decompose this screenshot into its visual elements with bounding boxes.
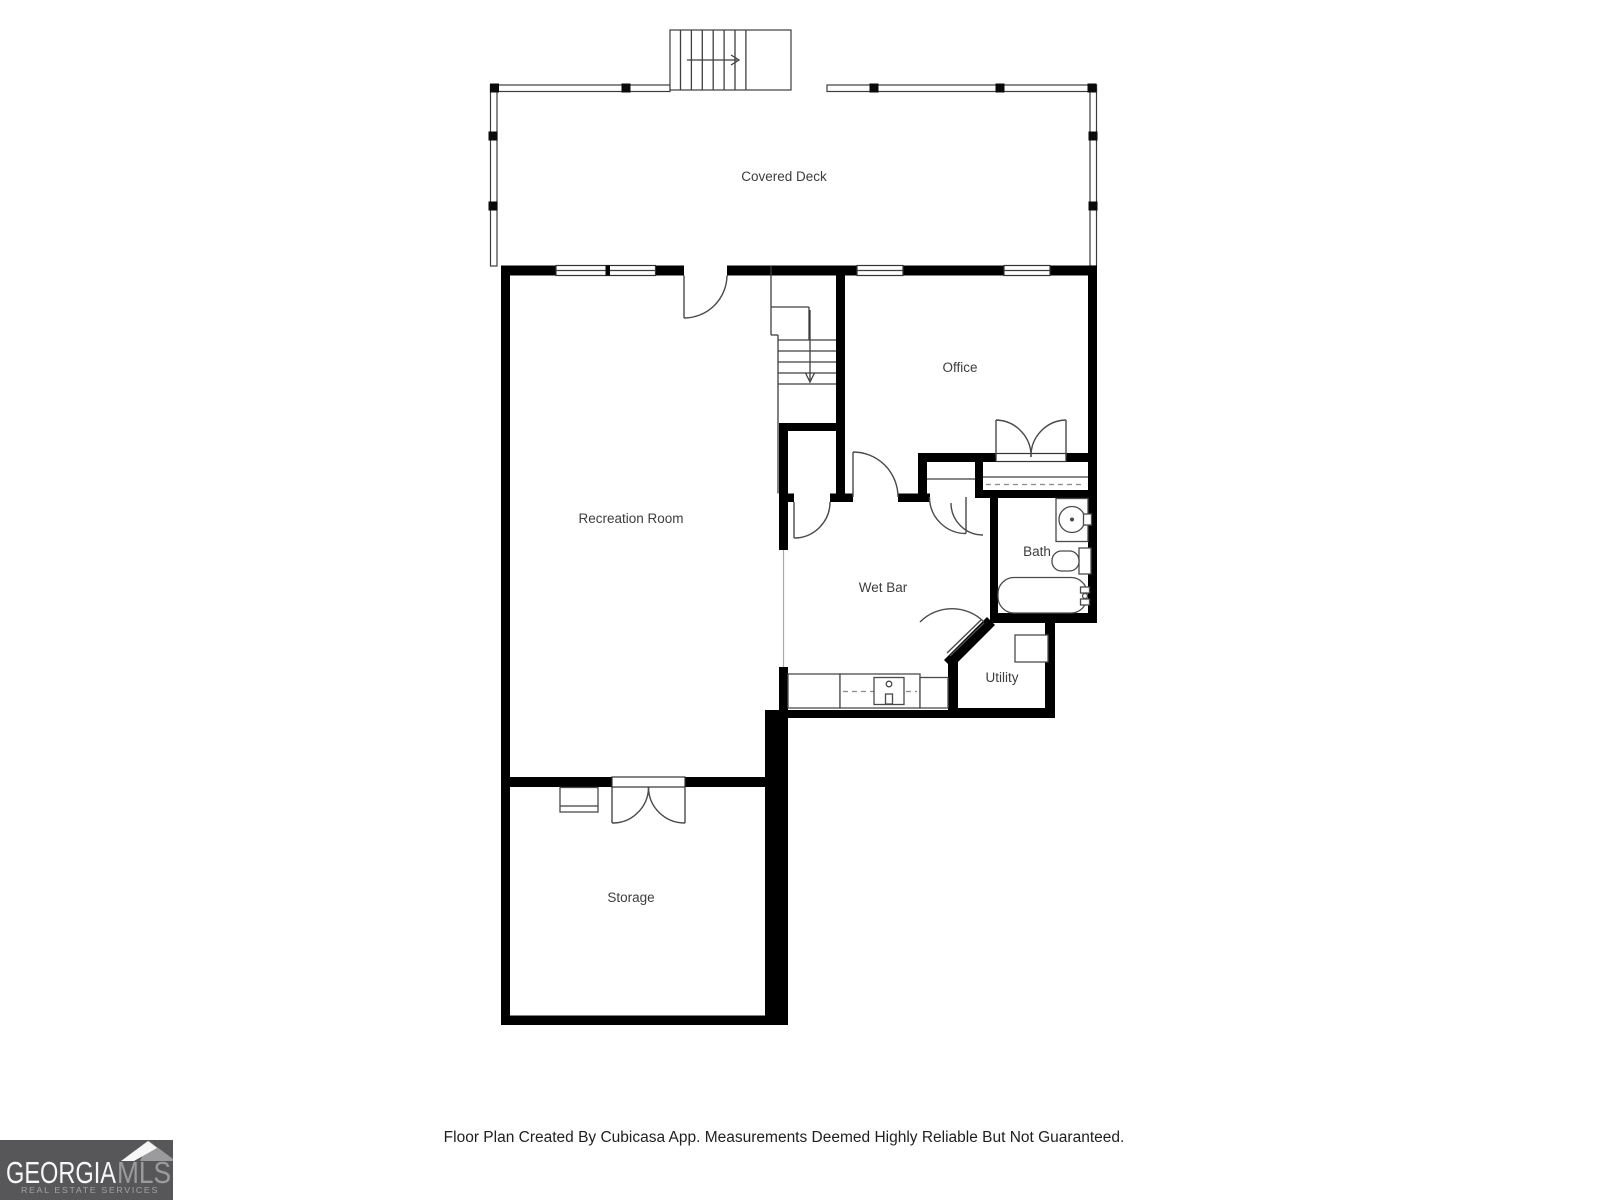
room-label-covered-deck: Covered Deck [741, 169, 827, 184]
door-bath-hall [930, 497, 984, 535]
floor-plan-canvas: Covered Deck Office Recreation Room Wet … [0, 0, 1600, 1200]
floor-plan-page: Covered Deck Office Recreation Room Wet … [0, 0, 1600, 1200]
logo-tagline: REAL ESTATE SERVICES [21, 1186, 159, 1195]
deck-posts [489, 84, 1098, 211]
utility-water-heater [1015, 635, 1048, 662]
brand-logo: GEORGIA MLS REAL ESTATE SERVICES [0, 1140, 173, 1200]
door-storage-double [612, 777, 685, 823]
stair-down-arrow [806, 310, 815, 382]
room-label-utility: Utility [986, 670, 1019, 685]
footer-disclaimer: Floor Plan Created By Cubicasa App. Meas… [444, 1129, 1125, 1146]
wetbar-sink [874, 678, 904, 705]
storage-cabinet [560, 788, 598, 813]
deck-exit-stairs [670, 30, 791, 90]
window-office-left [857, 266, 903, 276]
room-label-storage: Storage [607, 890, 654, 905]
window-recreation [556, 266, 656, 276]
window-office-right [1004, 266, 1050, 276]
bathtub [998, 578, 1090, 614]
room-label-recreation-room: Recreation Room [578, 511, 683, 526]
room-label-office: Office [942, 360, 977, 375]
exterior-walls [501, 266, 1097, 1026]
door-utility [920, 609, 984, 656]
logo-text-georgia: GEORGIA [6, 1155, 116, 1190]
logo-text-mls: MLS [117, 1155, 171, 1190]
door-deck-to-recreation [684, 276, 727, 319]
wetbar-counter [788, 674, 948, 708]
door-understair-closet [794, 502, 830, 538]
door-office [853, 452, 898, 497]
interior-walls [779, 266, 1097, 719]
room-label-wet-bar: Wet Bar [859, 580, 908, 595]
bath-sink-vanity [1056, 499, 1092, 542]
room-label-bath: Bath [1023, 544, 1051, 559]
closet-shelves [927, 477, 1088, 485]
toilet [1052, 548, 1091, 574]
door-office-closet-french [996, 420, 1066, 462]
